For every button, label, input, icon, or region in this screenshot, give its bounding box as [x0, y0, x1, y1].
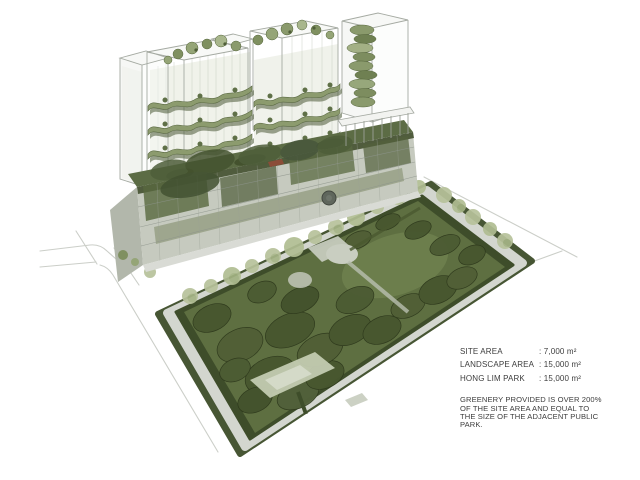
street-tree	[131, 258, 139, 266]
greenery-note-line: THE SIZE OF THE ADJACENT PUBLIC	[460, 413, 636, 421]
stat-row-hong-lim-park: HONG LIM PARK : 15,000 m²	[460, 372, 581, 385]
podium-left-face	[110, 187, 143, 282]
stat-label: HONG LIM PARK	[460, 372, 539, 385]
stats-table: SITE AREA : 7,000 m² LANDSCAPE AREA : 15…	[460, 345, 581, 385]
stat-value: : 7,000 m²	[539, 345, 581, 358]
stat-row-landscape-area: LANDSCAPE AREA : 15,000 m²	[460, 358, 581, 371]
area-statistics: SITE AREA : 7,000 m² LANDSCAPE AREA : 15…	[460, 345, 636, 430]
greenery-note-line: PARK.	[460, 421, 636, 429]
stat-label: SITE AREA	[460, 345, 539, 358]
architectural-site-diagram: SITE AREA : 7,000 m² LANDSCAPE AREA : 15…	[0, 0, 640, 480]
plan-tree-accent	[322, 191, 336, 205]
street-tree	[118, 250, 128, 260]
stat-value: : 15,000 m²	[539, 372, 581, 385]
stat-value: : 15,000 m²	[539, 358, 581, 371]
stat-label: LANDSCAPE AREA	[460, 358, 539, 371]
stat-row-site-area: SITE AREA : 7,000 m²	[460, 345, 581, 358]
greenery-note: GREENERY PROVIDED IS OVER 200% OF THE SI…	[460, 396, 636, 430]
